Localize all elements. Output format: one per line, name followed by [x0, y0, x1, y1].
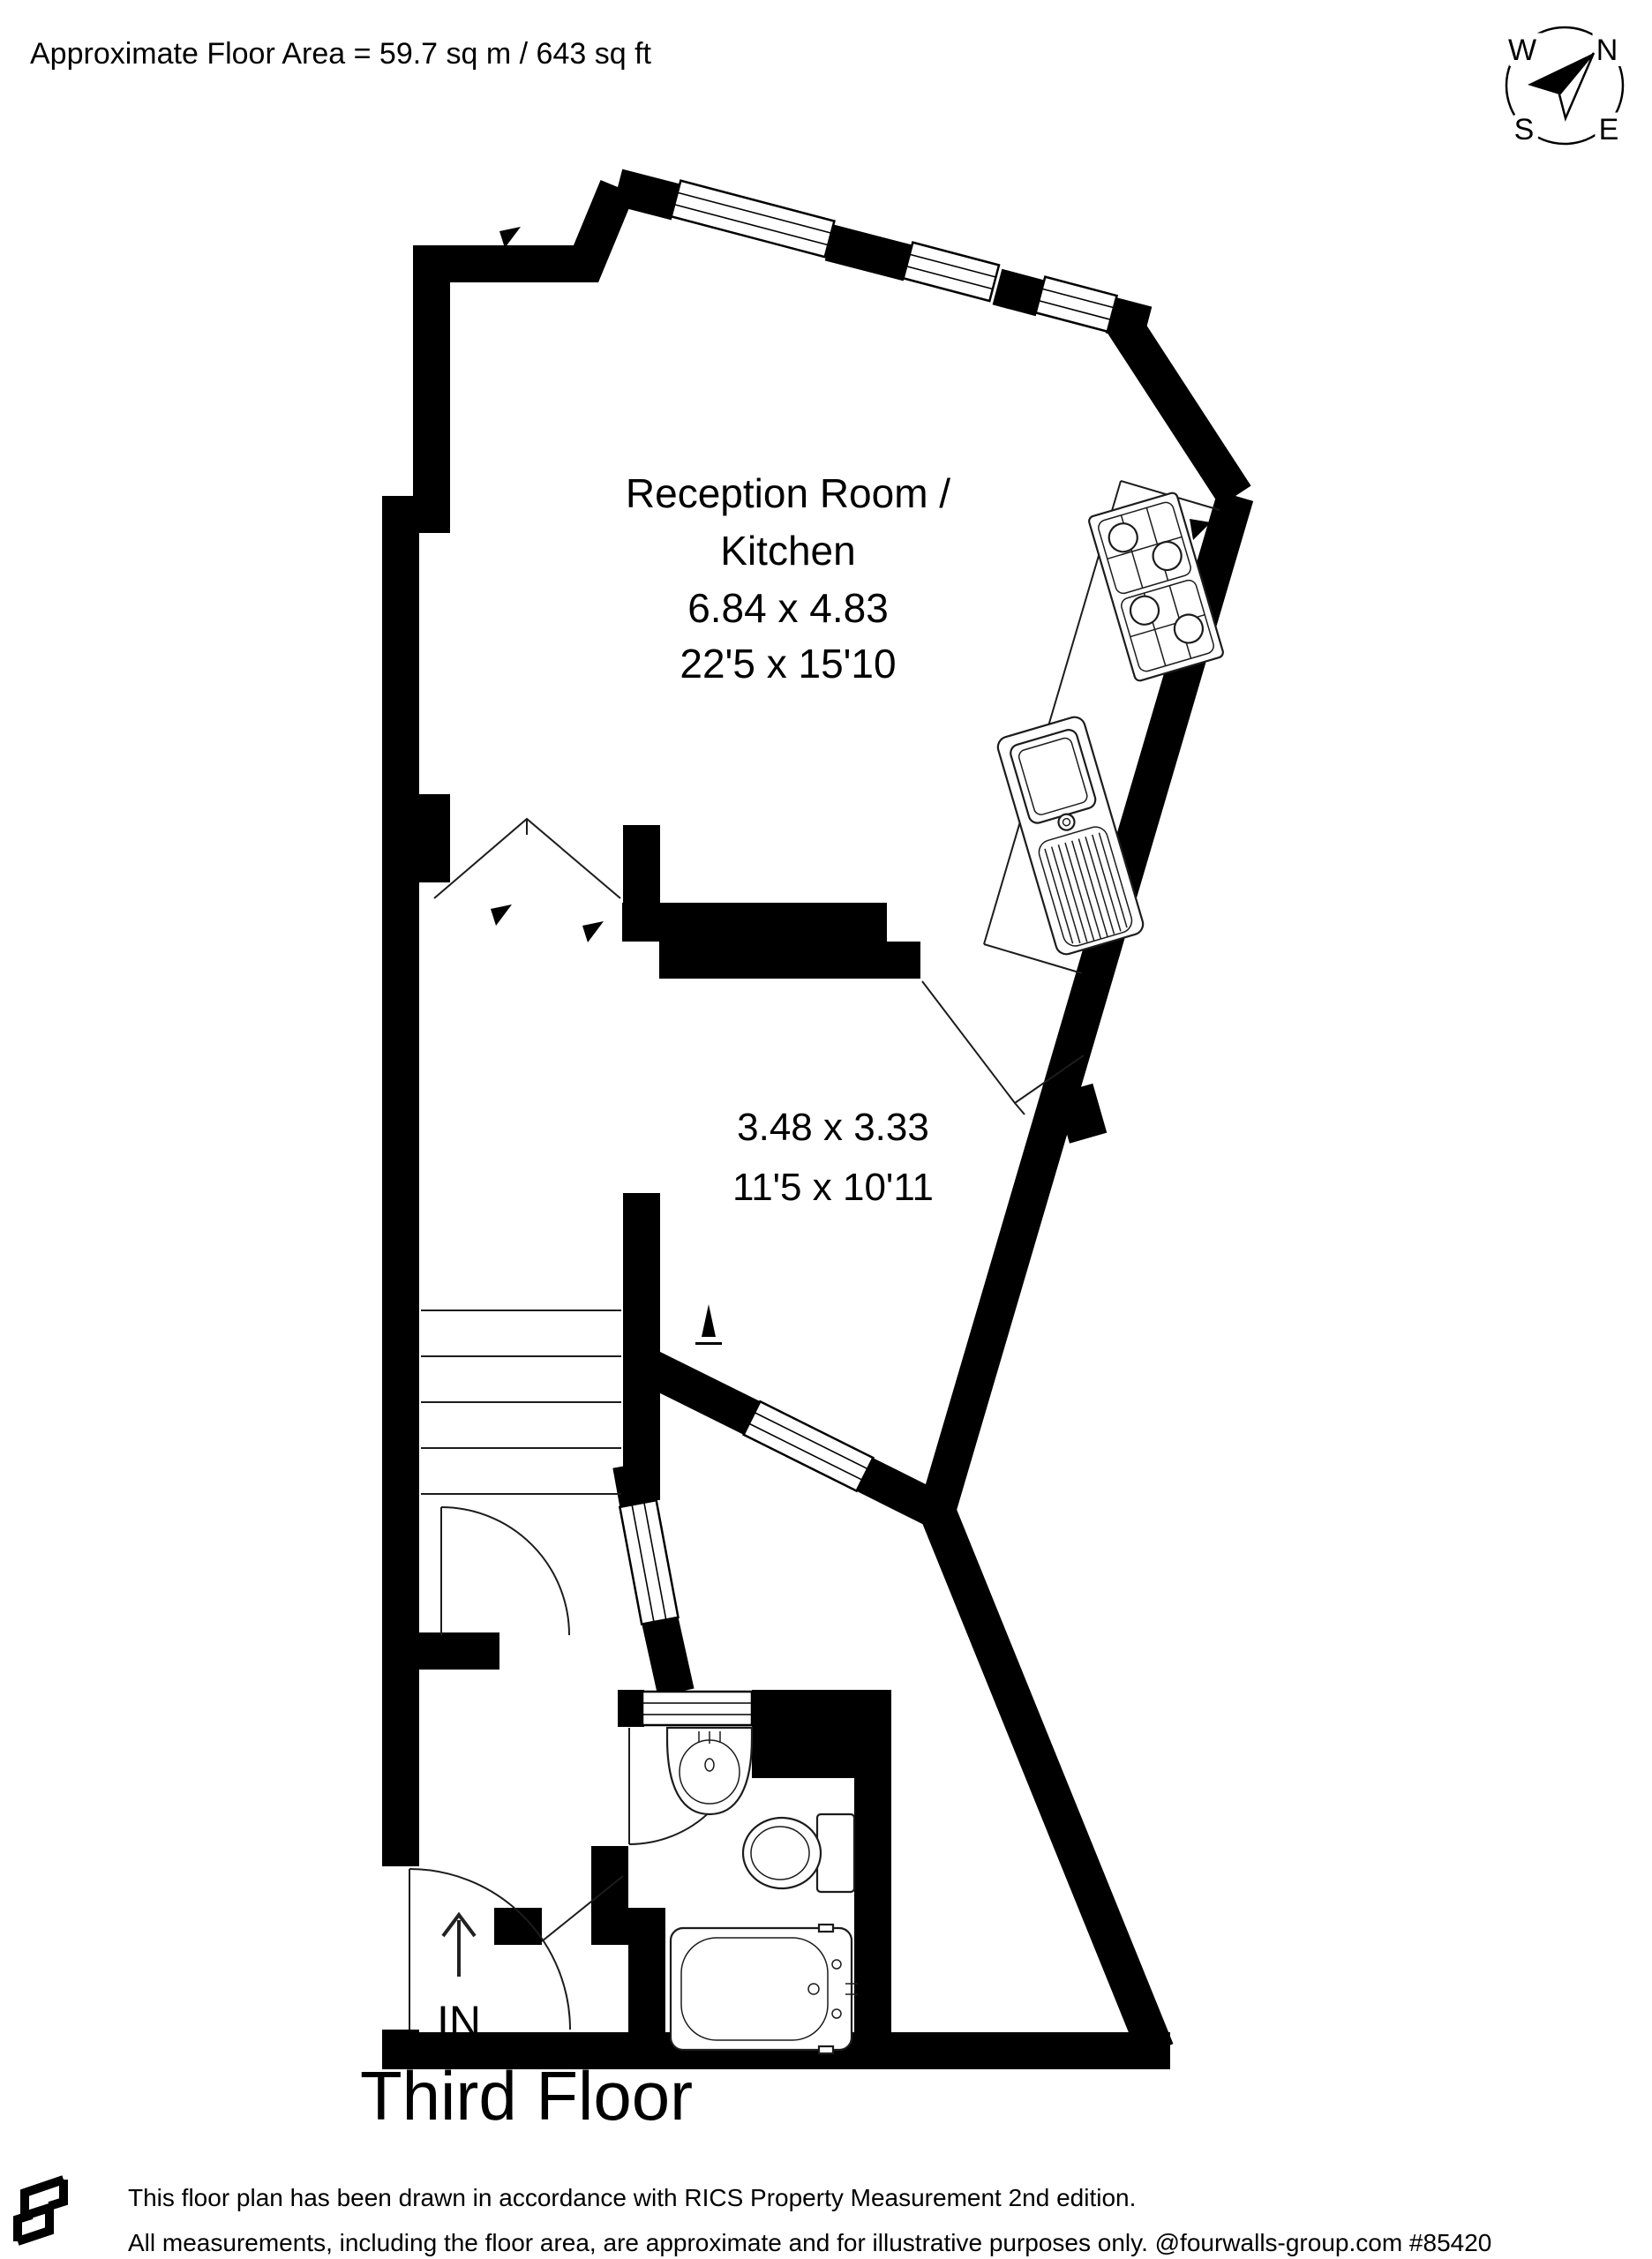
door-arc: [409, 1869, 570, 2030]
kitchen-counter: [984, 481, 1224, 973]
door-arc: [441, 1507, 569, 1635]
window: [672, 181, 835, 257]
entrance: IN: [437, 1915, 481, 2046]
footer-line1: This floor plan has been drawn in accord…: [128, 2184, 1136, 2211]
reception-metric-dimensions: 6.84 x 4.83: [687, 585, 889, 631]
compass-west-label: W: [1508, 34, 1536, 67]
footer-line2: All measurements, including the floor ar…: [128, 2229, 1491, 2256]
reception-name-line1: Reception Room /: [626, 470, 950, 516]
compass-south-label: S: [1514, 113, 1535, 146]
entrance-arrow-icon: [443, 1915, 475, 1977]
floor-area-label: Approximate Floor Area = 59.7 sq m / 643…: [30, 37, 652, 71]
reception-imperial-dimensions: 22'5 x 15'10: [680, 641, 896, 687]
window: [619, 1500, 678, 1624]
bedroom-metric-dimensions: 3.48 x 3.33: [737, 1106, 929, 1149]
interior-walls: [382, 825, 1107, 2053]
window: [1036, 277, 1117, 332]
entrance-label: IN: [437, 1997, 481, 2046]
window: [642, 1692, 752, 1725]
floor-plan-page: Approximate Floor Area = 59.7 sq m / 643…: [0, 0, 1652, 2259]
fourwalls-logo-icon: [18, 2180, 64, 2241]
stairs: [421, 1310, 621, 1494]
compass-icon: N W S E: [1506, 27, 1623, 146]
floor-plan-canvas: Approximate Floor Area = 59.7 sq m / 643…: [0, 0, 1652, 2259]
bedroom-imperial-dimensions: 11'5 x 10'11: [732, 1166, 934, 1209]
compass-east-label: E: [1599, 113, 1619, 146]
hob-icon: [1088, 492, 1225, 681]
toilet-icon: [743, 1814, 854, 1892]
bathtub-icon: [671, 1925, 858, 2053]
window: [744, 1401, 874, 1490]
floor-title: Third Floor: [360, 2057, 693, 2135]
window: [904, 243, 999, 301]
basin-icon: [667, 1728, 752, 1814]
room-labels: Reception Room / Kitchen 6.84 x 4.83 22'…: [626, 470, 950, 1209]
compass-north-label: N: [1596, 34, 1618, 67]
reception-name-line2: Kitchen: [720, 528, 855, 574]
